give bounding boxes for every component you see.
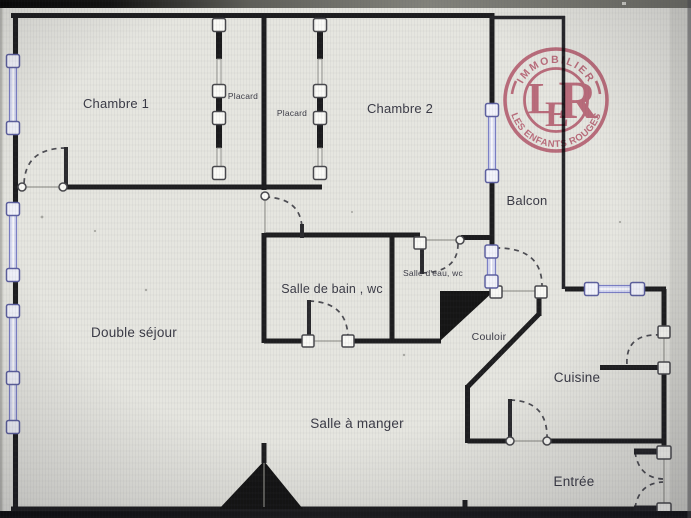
room-label-chambre-1: Chambre 1 (83, 96, 149, 111)
floor-plan-photo: Chambre 1 Placard Placard Chambre 2 Balc… (0, 0, 691, 518)
room-label-salle-a-manger: Salle à manger (310, 416, 404, 431)
left-edge-band (0, 8, 3, 511)
room-label-entree: Entrée (554, 474, 595, 489)
room-label-balcon: Balcon (507, 193, 548, 208)
room-label-double-sejour: Double séjour (91, 325, 177, 340)
floor-plan-svg: Chambre 1 Placard Placard Chambre 2 Balc… (0, 0, 691, 518)
room-label-placard-1: Placard (228, 91, 258, 101)
room-label-chambre-2: Chambre 2 (367, 101, 433, 116)
room-label-placard-2: Placard (277, 108, 307, 118)
stamp-monogram-r: R (559, 70, 599, 130)
bottom-edge-band (0, 511, 691, 518)
room-label-salle-de-bain: Salle de bain , wc (281, 282, 383, 296)
top-band-speck (622, 2, 626, 5)
top-edge-band (0, 0, 691, 8)
room-label-cuisine: Cuisine (554, 370, 600, 385)
room-label-couloir: Couloir (472, 331, 507, 343)
right-edge-band (688, 0, 691, 518)
balcony-glazed-door-leaf (485, 245, 498, 288)
room-label-salle-d-eau: Salle d'eau, wc (403, 268, 463, 278)
